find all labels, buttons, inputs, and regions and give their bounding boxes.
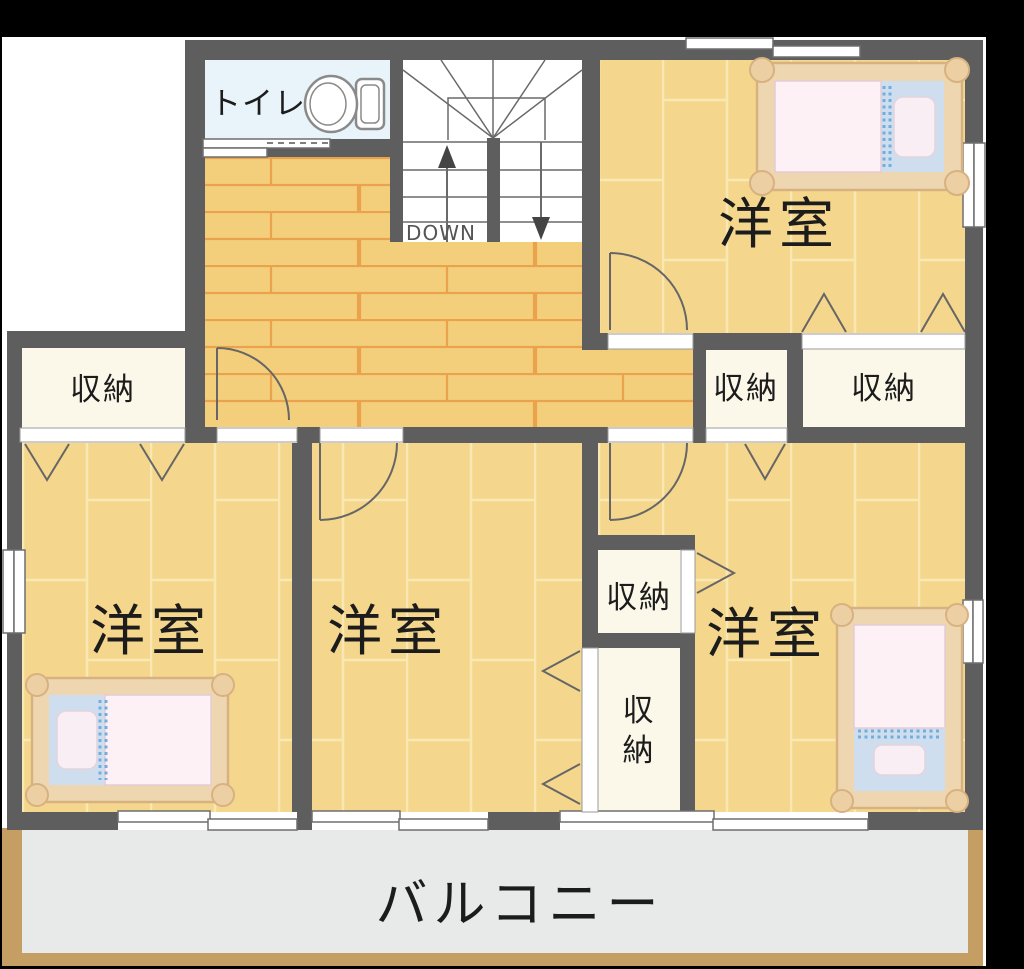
hall-floor-east: [582, 347, 693, 427]
bed-ne: [750, 58, 969, 195]
bed-se: [831, 604, 968, 812]
window-right2-pane2: [973, 600, 983, 663]
storage-tall-floor: [598, 648, 680, 812]
storage-tall-label-top: 収: [623, 693, 656, 729]
storage-mid-label: 収納: [606, 580, 672, 616]
toilet-label: トイレ: [210, 86, 306, 122]
balcony-door-s-pane2: [399, 819, 488, 830]
room-s-label: 洋室: [327, 599, 449, 663]
toilet-door-pane2: [203, 148, 267, 157]
toilet-icon: [305, 76, 384, 132]
balcony-door-se-pane2: [713, 819, 868, 830]
bed-sw-blanket: [105, 695, 211, 785]
window-left-pane1: [3, 550, 14, 633]
floor-plan-screenshot: トイレ DOWN 洋室 洋室 洋室 洋室 収納 収納 収納 収納 収 納 バルコ…: [0, 0, 1024, 969]
window-top-pane1: [686, 38, 773, 49]
balcony-door-sw-pane1: [118, 811, 210, 822]
balcony-border-bottom: [2, 953, 983, 966]
toilet-door-pane1: [203, 139, 330, 148]
bed-ne-blanket: [775, 81, 881, 172]
balcony-door-sw-pane2: [208, 819, 297, 830]
storage-center-wide-label: 収納: [851, 371, 917, 407]
window-left-pane2: [14, 550, 25, 633]
room-se-label: 洋室: [706, 602, 828, 666]
storage-west-label: 収納: [70, 372, 136, 408]
storage-tall-label-bottom: 納: [623, 733, 656, 769]
balcony-border-right: [968, 830, 983, 966]
balcony-door-se-pane1: [560, 811, 714, 822]
hall-floor-west: [205, 156, 390, 427]
room-ne-label: 洋室: [718, 192, 840, 256]
balcony-door-s-pane1: [312, 811, 400, 822]
bed-sw-pillow: [57, 711, 97, 769]
balcony-label: バルコニー: [376, 875, 665, 935]
stairs-down-label: DOWN: [406, 221, 476, 245]
window-right1-pane2: [974, 143, 985, 227]
window-top-pane2: [773, 46, 860, 57]
storage-center-small-label: 収納: [713, 371, 779, 407]
floor-plan-svg: トイレ DOWN 洋室 洋室 洋室 洋室 収納 収納 収納 収納 収 納 バルコ…: [0, 0, 1024, 969]
hall-floor-center: [390, 242, 582, 427]
bed-sw: [26, 674, 234, 806]
balcony-border-left: [2, 828, 22, 966]
bed-ne-pillow: [894, 97, 935, 157]
room-sw-label: 洋室: [90, 599, 212, 663]
bed-se-blanket: [854, 625, 945, 728]
bed-se-pillow: [874, 745, 925, 775]
